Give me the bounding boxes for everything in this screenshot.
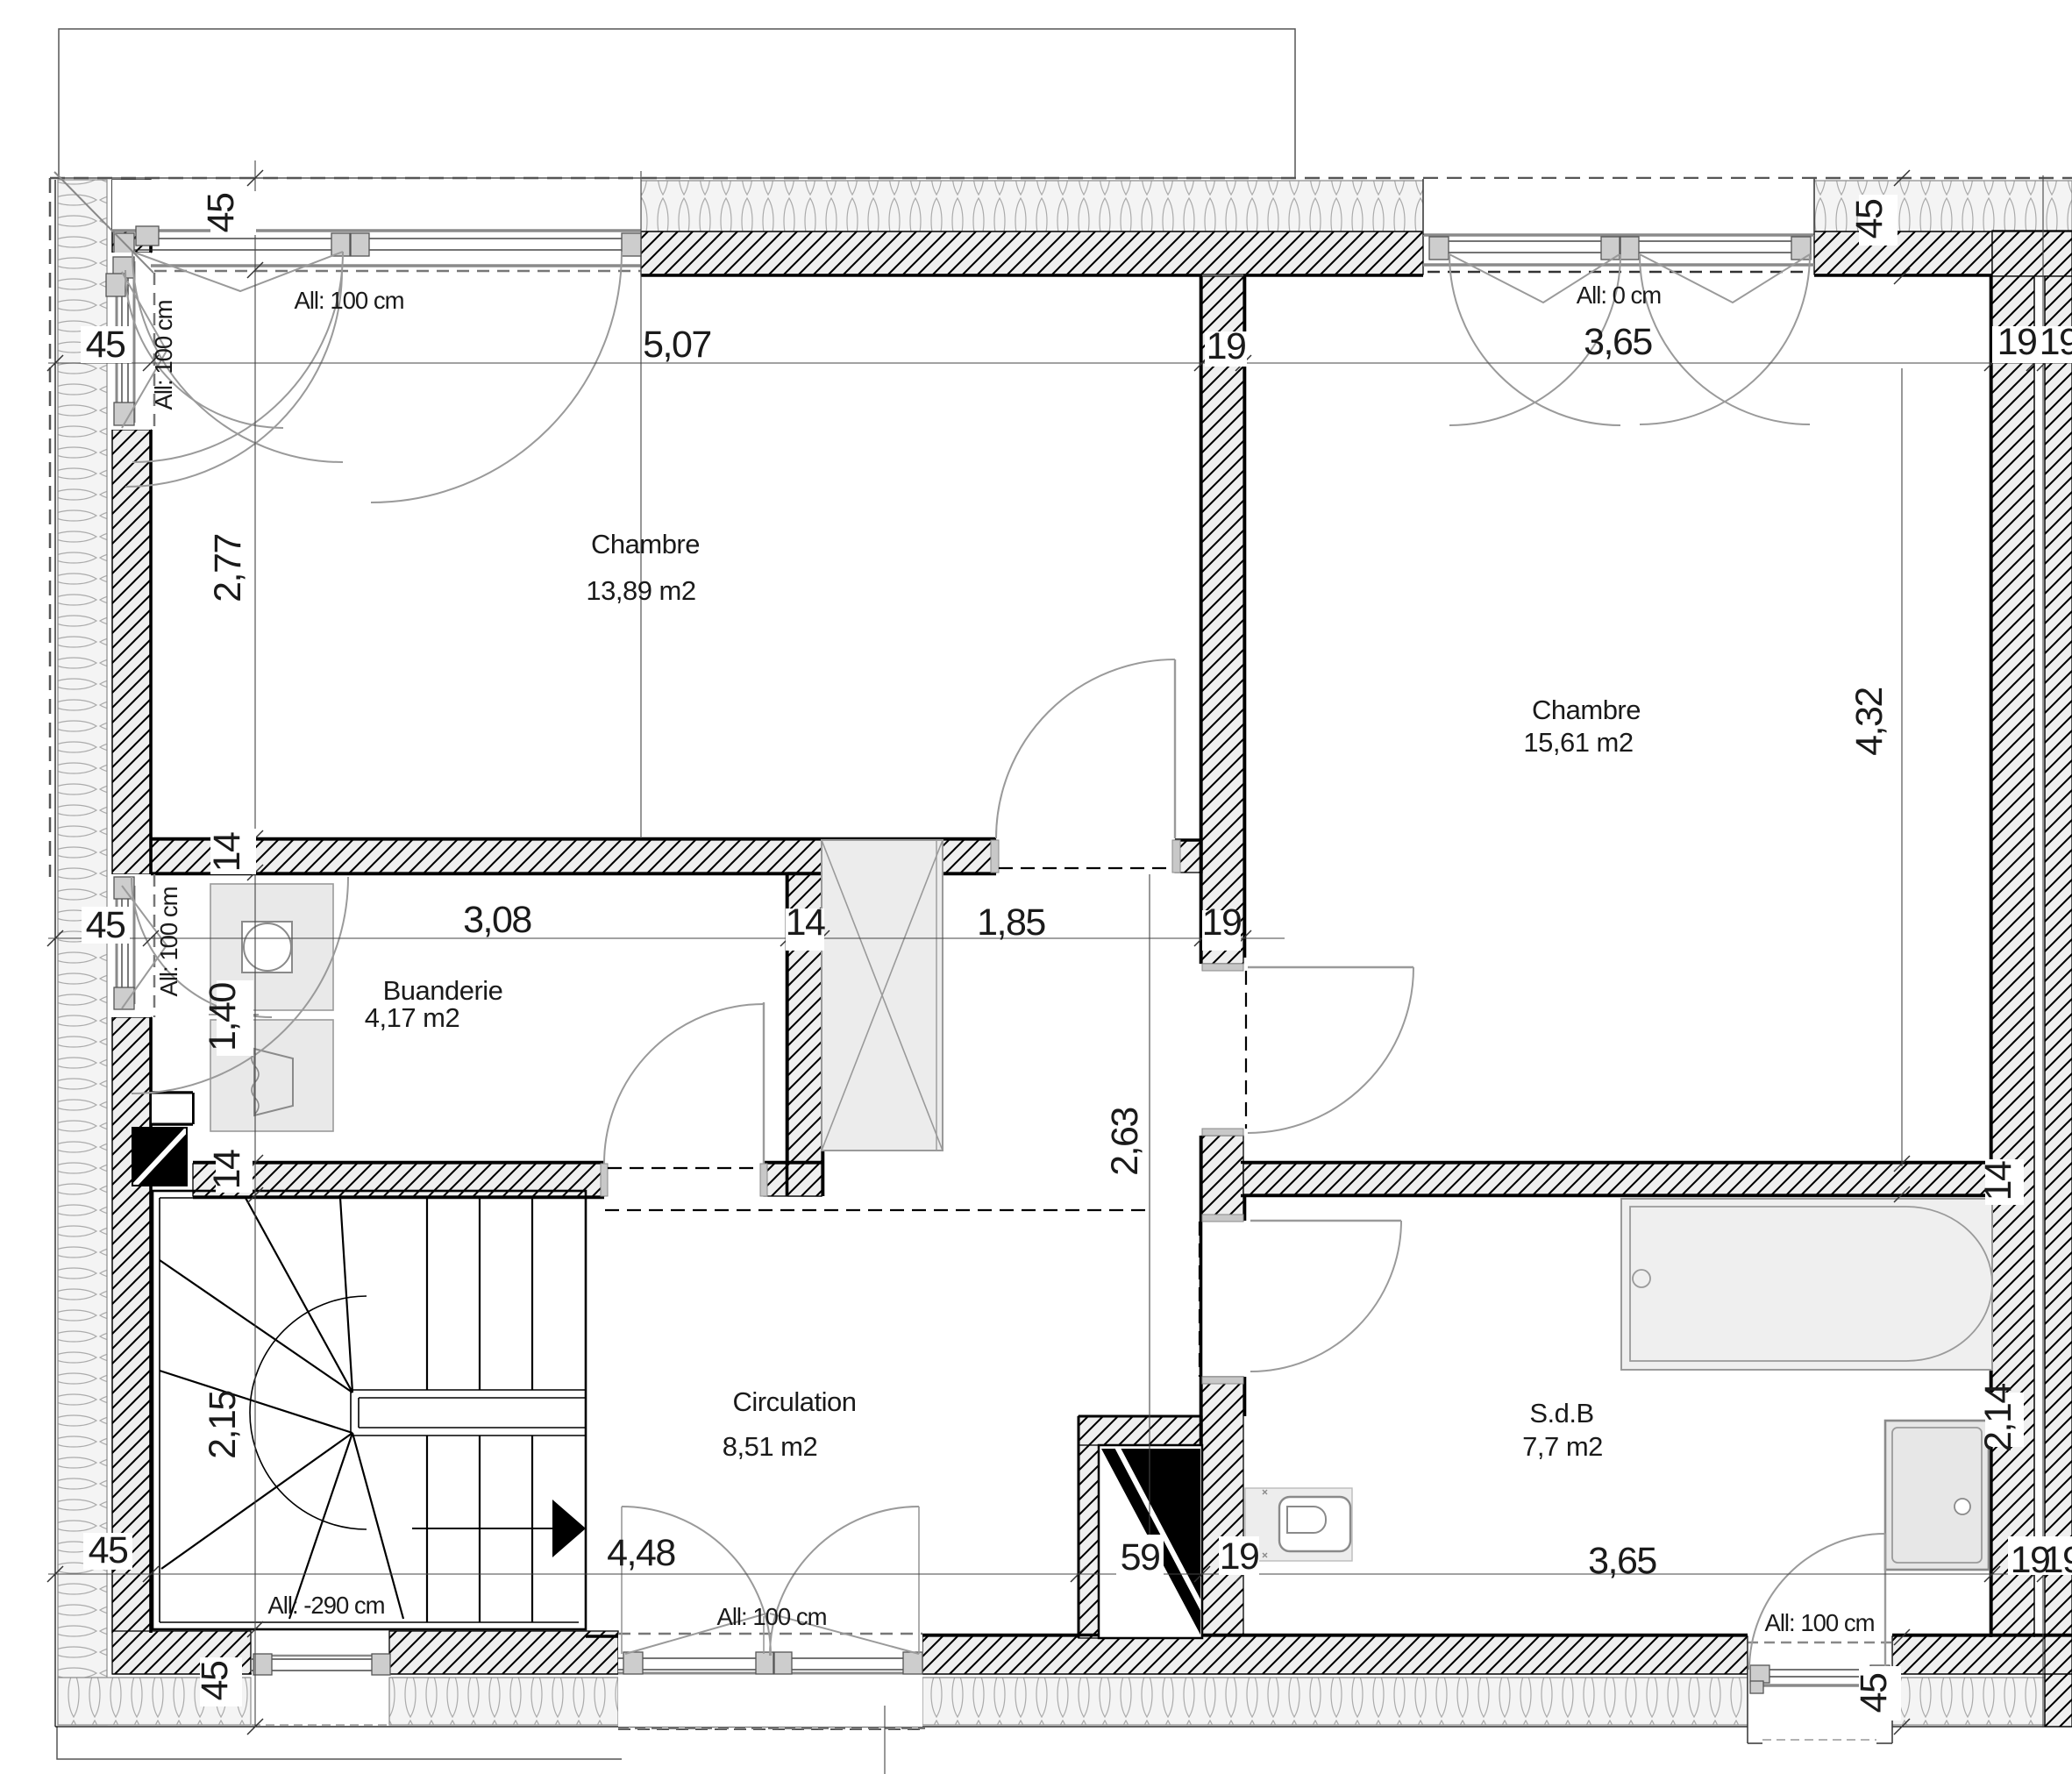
- svg-text:All: 100 cm: All: 100 cm: [150, 300, 177, 410]
- svg-text:14: 14: [206, 1150, 248, 1189]
- svg-text:8,51 m2: 8,51 m2: [723, 1431, 818, 1462]
- svg-text:19: 19: [1202, 901, 1242, 944]
- svg-text:Chambre: Chambre: [1532, 695, 1641, 725]
- svg-text:19: 19: [2040, 321, 2072, 363]
- svg-text:2,15: 2,15: [202, 1391, 244, 1459]
- svg-text:All: 100 cm: All: 100 cm: [155, 887, 182, 996]
- svg-text:14: 14: [786, 901, 825, 944]
- svg-text:19: 19: [1997, 321, 2037, 363]
- svg-text:Circulation: Circulation: [733, 1386, 857, 1417]
- svg-text:4,48: 4,48: [607, 1532, 675, 1574]
- svg-text:3,65: 3,65: [1584, 321, 1652, 363]
- svg-text:7,7 m2: 7,7 m2: [1522, 1431, 1603, 1462]
- svg-text:14: 14: [1977, 1161, 2019, 1200]
- svg-text:45: 45: [194, 1661, 236, 1700]
- svg-text:Chambre: Chambre: [591, 529, 700, 559]
- svg-text:4,32: 4,32: [1848, 688, 1890, 756]
- svg-text:2,63: 2,63: [1104, 1108, 1146, 1176]
- svg-text:19: 19: [1220, 1535, 1259, 1578]
- svg-text:45: 45: [86, 904, 125, 946]
- svg-text:19: 19: [2043, 1539, 2072, 1581]
- svg-text:All: 100 cm: All: 100 cm: [716, 1603, 826, 1630]
- svg-text:45: 45: [1853, 1673, 1895, 1713]
- svg-text:1,40: 1,40: [202, 983, 244, 1051]
- svg-text:13,89 m2: 13,89 m2: [586, 575, 695, 606]
- svg-text:45: 45: [86, 324, 125, 366]
- svg-text:S.d.B: S.d.B: [1529, 1398, 1593, 1428]
- svg-text:1,85: 1,85: [977, 901, 1045, 944]
- svg-text:15,61 m2: 15,61 m2: [1523, 727, 1633, 758]
- svg-text:45: 45: [1848, 199, 1890, 239]
- svg-text:5,07: 5,07: [643, 324, 711, 366]
- svg-text:59: 59: [1121, 1536, 1160, 1578]
- svg-text:2,14: 2,14: [1977, 1384, 2019, 1452]
- svg-text:2,77: 2,77: [207, 534, 249, 602]
- svg-text:3,08: 3,08: [463, 899, 531, 941]
- svg-text:All: -290 cm: All: -290 cm: [267, 1592, 384, 1619]
- svg-text:45: 45: [200, 193, 242, 232]
- svg-text:19: 19: [1207, 325, 1246, 367]
- svg-text:All: 100 cm: All: 100 cm: [294, 287, 403, 314]
- svg-text:45: 45: [89, 1529, 128, 1571]
- svg-text:4,17 m2: 4,17 m2: [365, 1002, 460, 1033]
- svg-text:3,65: 3,65: [1588, 1540, 1656, 1582]
- svg-text:All: 100 cm: All: 100 cm: [1764, 1609, 1874, 1636]
- svg-text:14: 14: [206, 832, 248, 872]
- svg-text:All: 0 cm: All: 0 cm: [1577, 281, 1662, 309]
- svg-text:Buanderie: Buanderie: [383, 975, 503, 1006]
